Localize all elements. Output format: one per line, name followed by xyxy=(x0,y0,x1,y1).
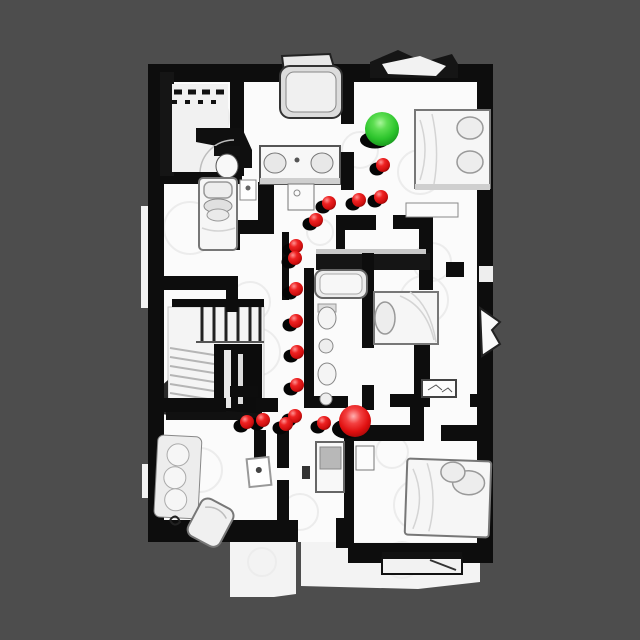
waypoint-marker xyxy=(256,413,270,427)
goal-sphere xyxy=(365,112,399,146)
waypoint-marker xyxy=(322,196,336,210)
waypoint-marker xyxy=(289,314,303,328)
waypoint-marker xyxy=(376,158,390,172)
waypoint-marker xyxy=(289,239,303,253)
waypoint-marker xyxy=(374,190,388,204)
dresser-icon xyxy=(422,380,456,397)
waypoint-marker xyxy=(309,213,323,227)
waypoint-marker xyxy=(279,417,293,431)
shelf-icon xyxy=(406,203,458,217)
hall-cabinet xyxy=(288,184,314,210)
toilet-icon xyxy=(318,307,336,329)
sink-icon xyxy=(320,393,332,405)
waypoint-marker xyxy=(290,345,304,359)
scene-viewport[interactable] xyxy=(0,0,640,640)
waypoint-marker xyxy=(352,193,366,207)
toilet-icon xyxy=(318,363,336,385)
waypoint-marker xyxy=(289,282,303,296)
floorplan-canvas xyxy=(0,0,640,640)
agent-sphere xyxy=(339,405,371,437)
toilet-icon xyxy=(216,154,238,178)
porch-step xyxy=(382,552,462,574)
sink-icon xyxy=(319,339,333,353)
bedroom-top-right xyxy=(415,110,490,190)
waypoint-marker xyxy=(288,251,302,265)
chair-icon xyxy=(356,446,374,470)
waypoint-marker xyxy=(317,416,331,430)
waypoint-marker xyxy=(290,378,304,392)
waypoint-marker xyxy=(240,415,254,429)
